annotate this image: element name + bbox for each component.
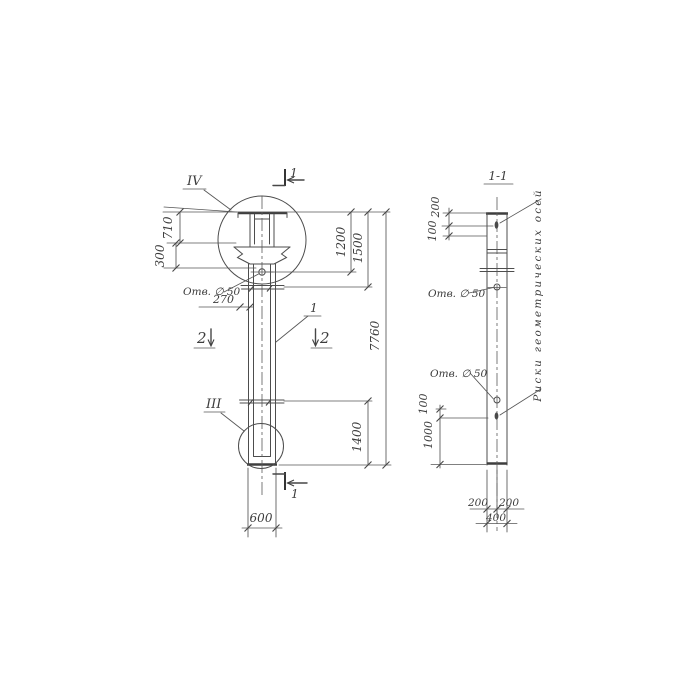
drawing-sheet: IV III 1 1 2 2 1 Отв. ∅ 50 710 300 270 1… bbox=[0, 0, 700, 700]
axes-note: Риски геометрических осей bbox=[532, 188, 544, 402]
axis-mark-bottom bbox=[495, 412, 499, 419]
section-title: 1-1 bbox=[488, 169, 507, 183]
section-dimensions bbox=[431, 184, 541, 532]
cut1-bottom-label: 1 bbox=[291, 487, 299, 501]
elevation-labels: IV III 1 1 2 2 1 Отв. ∅ 50 710 300 270 1… bbox=[153, 166, 382, 525]
dim-1500: 1500 bbox=[351, 232, 365, 263]
hole-label-lower: Отв. ∅ 50 bbox=[430, 368, 488, 380]
cut1-top-label: 1 bbox=[290, 166, 298, 180]
dim-200-bottom-left: 200 bbox=[467, 497, 488, 509]
pile-drawing: IV III 1 1 2 2 1 Отв. ∅ 50 710 300 270 1… bbox=[0, 0, 700, 700]
dim-100-top: 100 bbox=[426, 221, 439, 242]
detail-circle-bottom bbox=[239, 424, 284, 469]
dim-1200: 1200 bbox=[334, 226, 348, 257]
axis-mark-top bbox=[495, 221, 499, 229]
dim-1400: 1400 bbox=[350, 421, 364, 452]
dim-200-top: 200 bbox=[429, 197, 442, 219]
dim-270: 270 bbox=[212, 293, 234, 306]
dim-300: 300 bbox=[153, 244, 167, 267]
dim-710: 710 bbox=[161, 216, 175, 239]
cut2-right-label: 2 bbox=[319, 329, 330, 347]
elevation-outline bbox=[234, 196, 290, 497]
dim-400: 400 bbox=[485, 512, 506, 524]
dim-200-bottom-right: 200 bbox=[498, 497, 519, 509]
section-labels: 1-1 200 100 Отв. ∅ 50 Отв. ∅ 50 100 1000… bbox=[417, 169, 544, 524]
hole-label-upper: Отв. ∅ 50 bbox=[428, 288, 486, 300]
detail-mark-III: III bbox=[205, 397, 222, 412]
dim-100-bottom: 100 bbox=[417, 394, 430, 415]
elevation-section-marks bbox=[194, 169, 332, 490]
cut2-left-label: 2 bbox=[196, 329, 207, 347]
detail-mark-IV: IV bbox=[186, 174, 203, 189]
position-label: 1 bbox=[310, 301, 318, 315]
dim-1000: 1000 bbox=[422, 421, 435, 449]
dim-600: 600 bbox=[250, 511, 273, 525]
dim-7760: 7760 bbox=[368, 320, 382, 351]
